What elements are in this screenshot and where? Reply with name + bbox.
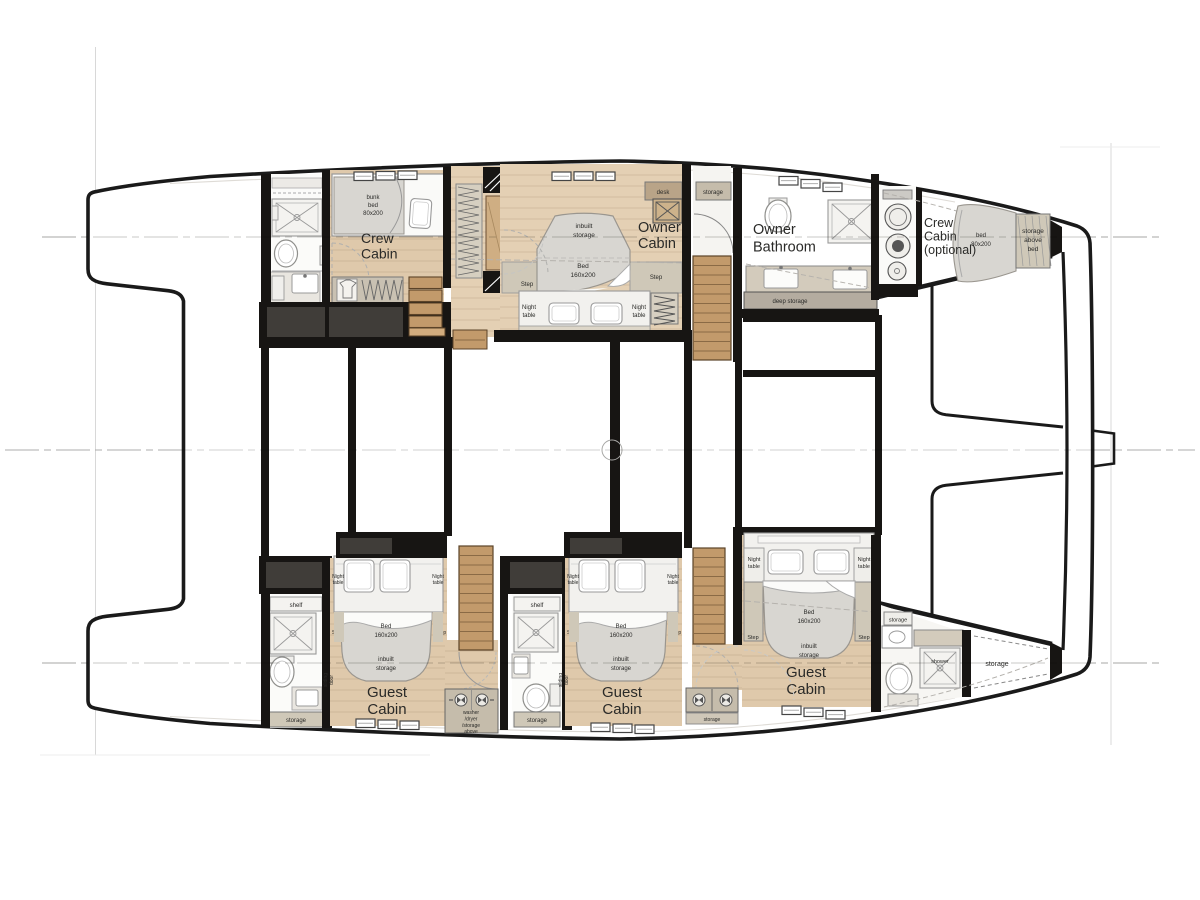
svg-text:storage: storage: [703, 190, 724, 196]
svg-text:above: above: [1024, 237, 1042, 244]
svg-text:inbuilt: inbuilt: [576, 223, 593, 230]
svg-text:Step: Step: [747, 635, 758, 641]
svg-text:Step: Step: [521, 282, 534, 288]
svg-text:storage: storage: [376, 666, 397, 672]
svg-text:(optional): (optional): [924, 243, 976, 257]
svg-text:storage: storage: [704, 717, 721, 723]
svg-text:storage: storage: [1022, 228, 1044, 235]
svg-text:storage: storage: [889, 618, 907, 624]
svg-text:washer: washer: [463, 710, 479, 716]
svg-text:storage: storage: [573, 232, 595, 239]
svg-text:deep storage: deep storage: [772, 299, 808, 305]
svg-text:door: door: [329, 675, 335, 685]
svg-text:bed: bed: [368, 203, 378, 209]
svg-text:storage: storage: [527, 718, 548, 724]
svg-text:bed: bed: [1028, 246, 1039, 253]
svg-text:Step: Step: [858, 635, 869, 641]
svg-text:Guest: Guest: [367, 684, 408, 701]
svg-text:desk: desk: [657, 190, 671, 196]
svg-text:Bed: Bed: [804, 610, 815, 616]
svg-text:inbuilt: inbuilt: [613, 657, 629, 663]
svg-text:above: above: [464, 729, 478, 735]
svg-text:inbuilt: inbuilt: [801, 644, 817, 650]
svg-text:table: table: [333, 580, 344, 586]
svg-text:storage: storage: [286, 718, 307, 724]
svg-text:Cabin: Cabin: [786, 681, 825, 698]
svg-text:door: door: [564, 675, 570, 685]
svg-text:table: table: [748, 564, 760, 570]
svg-text:storage: storage: [611, 666, 632, 672]
svg-text:Night: Night: [748, 557, 761, 563]
svg-text:Cabin: Cabin: [638, 236, 676, 252]
svg-text:Crew: Crew: [361, 230, 395, 246]
svg-text:table: table: [433, 580, 444, 586]
svg-text:storage: storage: [799, 653, 820, 659]
svg-text:Bathroom: Bathroom: [753, 240, 816, 256]
svg-text:Cabin: Cabin: [602, 701, 641, 718]
svg-text:Guest: Guest: [602, 684, 643, 701]
svg-text:160x200: 160x200: [374, 633, 398, 639]
svg-text:160x200: 160x200: [797, 619, 821, 625]
svg-text:Cabin: Cabin: [367, 701, 406, 718]
svg-text:table: table: [858, 564, 870, 570]
svg-text:80x200: 80x200: [363, 211, 383, 217]
svg-text:Bed: Bed: [577, 263, 589, 270]
svg-text:bed: bed: [976, 233, 986, 239]
svg-text:table: table: [568, 580, 579, 586]
svg-text:/dryer: /dryer: [465, 717, 478, 723]
svg-text:inbuilt: inbuilt: [378, 657, 394, 663]
svg-text:Guest: Guest: [786, 664, 827, 681]
svg-text:Crew: Crew: [924, 216, 954, 230]
svg-text:Bed: Bed: [616, 624, 627, 630]
svg-text:shower: shower: [931, 659, 949, 665]
svg-text:table: table: [632, 313, 646, 319]
svg-text:bunk: bunk: [366, 195, 380, 201]
svg-text:Bed: Bed: [381, 624, 392, 630]
svg-text:80x200: 80x200: [971, 242, 991, 248]
svg-text:Step: Step: [650, 275, 663, 281]
svg-text:shelf: shelf: [531, 603, 544, 609]
svg-text:storage: storage: [985, 661, 1008, 668]
svg-text:table: table: [668, 580, 679, 586]
svg-text:160x200: 160x200: [609, 633, 633, 639]
svg-text:160x200: 160x200: [571, 272, 596, 279]
svg-text:Night: Night: [858, 557, 871, 563]
svg-text:Cabin: Cabin: [361, 246, 398, 262]
svg-text:Night: Night: [522, 305, 536, 311]
svg-text:Night: Night: [632, 305, 646, 311]
svg-text:table: table: [522, 313, 536, 319]
svg-text:shelf: shelf: [290, 603, 303, 609]
svg-text:Owner: Owner: [638, 220, 681, 236]
svg-text:Owner: Owner: [753, 222, 796, 238]
